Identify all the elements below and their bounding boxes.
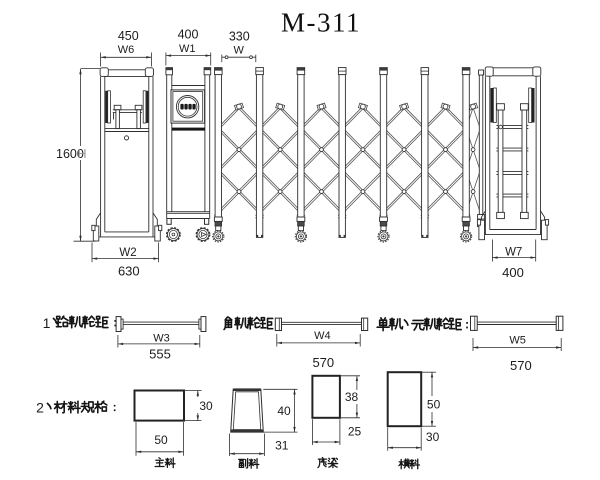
svg-text:W: W (234, 44, 245, 56)
svg-text:M-311: M-311 (281, 8, 361, 38)
svg-text:50: 50 (427, 397, 441, 411)
svg-text:330: 330 (229, 30, 250, 44)
svg-text:W6: W6 (118, 44, 135, 56)
svg-text:30: 30 (426, 430, 440, 444)
svg-text:30: 30 (199, 399, 213, 413)
svg-text:570: 570 (510, 358, 532, 373)
svg-text:2: 2 (36, 400, 44, 416)
svg-text:H: H (78, 147, 87, 161)
svg-text:W4: W4 (314, 330, 331, 342)
svg-text:555: 555 (149, 347, 171, 362)
svg-text:31: 31 (275, 439, 289, 453)
svg-text:W1: W1 (179, 43, 196, 55)
svg-text:450: 450 (118, 29, 139, 43)
svg-text:W5: W5 (509, 335, 526, 347)
svg-text:570: 570 (312, 355, 334, 370)
svg-text:400: 400 (502, 265, 524, 280)
svg-text:50: 50 (154, 433, 168, 447)
svg-text:W3: W3 (153, 333, 170, 345)
svg-text:38: 38 (345, 390, 359, 404)
svg-text:W2: W2 (119, 247, 136, 259)
svg-text:400: 400 (178, 28, 199, 42)
svg-text:W7: W7 (505, 246, 522, 258)
svg-text:630: 630 (118, 264, 140, 279)
svg-text:40: 40 (277, 404, 291, 418)
svg-text:1: 1 (43, 315, 51, 331)
svg-text:25: 25 (348, 425, 362, 439)
